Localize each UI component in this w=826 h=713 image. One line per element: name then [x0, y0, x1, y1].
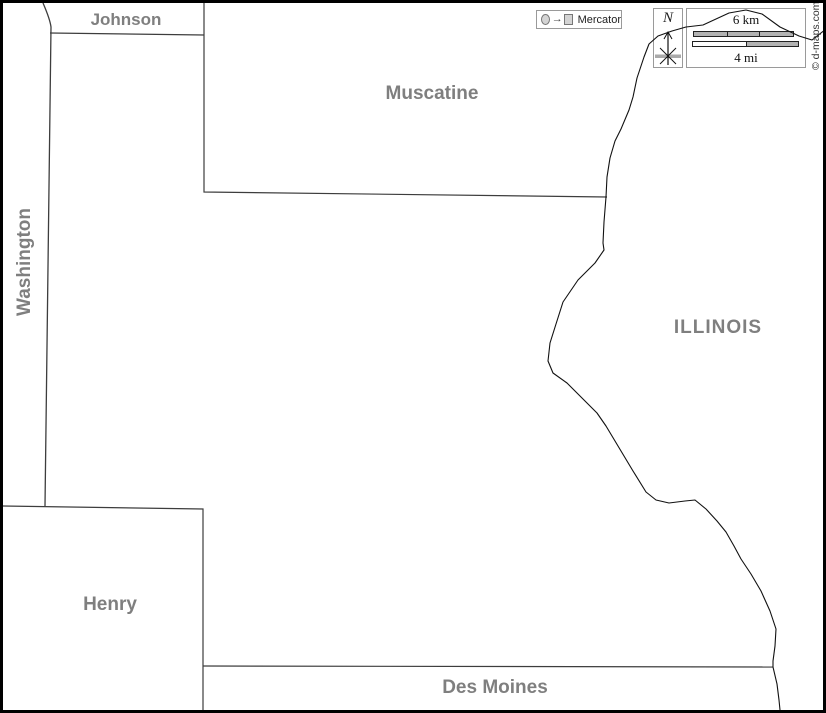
region-label-des-moines: Des Moines: [442, 677, 548, 699]
scale-mi-label: 4 mi: [687, 50, 805, 66]
globe-circle-icon: [541, 14, 550, 25]
scale-tick: [727, 31, 728, 37]
compass-arrow-icon: [654, 29, 682, 67]
scale-bar-box: 6 km 4 mi: [686, 8, 806, 68]
scale-km-label: 6 km: [687, 12, 805, 28]
region-label-muscatine: Muscatine: [386, 83, 479, 105]
johnson-border-line: [50, 33, 204, 35]
region-label-johnson: Johnson: [91, 10, 162, 30]
region-label-henry: Henry: [83, 594, 137, 616]
projection-square-icon: [564, 14, 573, 25]
region-label-illinois: ILLINOIS: [674, 317, 762, 339]
washington-border-line: [43, 3, 51, 506]
scale-km-bar: [693, 31, 794, 37]
map-credit: © d-maps.com: [810, 2, 822, 70]
arrow-right-icon: →: [552, 14, 563, 25]
region-label-washington: Washington: [14, 208, 36, 316]
county-map-canvas: Johnson Muscatine Washington ILLINOIS He…: [0, 0, 826, 713]
mississippi-river-line: [548, 10, 826, 710]
scale-tick: [759, 31, 760, 37]
scale-mi-bar: [692, 41, 799, 47]
compass-box: N: [653, 8, 683, 68]
des-moines-border-line: [203, 666, 773, 667]
projection-legend: → Mercator: [536, 10, 622, 29]
projection-name: Mercator: [578, 14, 621, 26]
scale-mi-segment: [746, 42, 799, 46]
north-label: N: [654, 10, 682, 27]
